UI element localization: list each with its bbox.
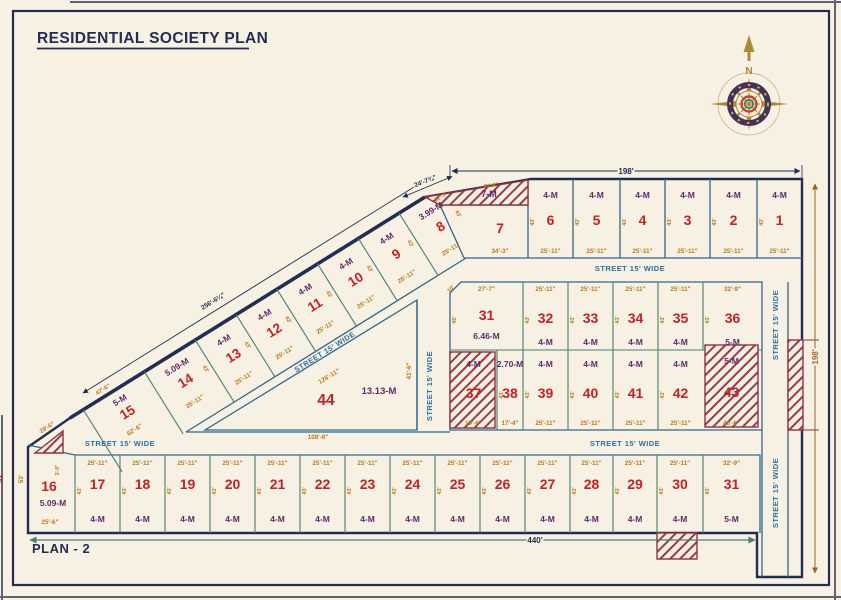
plot-width-dim: 34'-3": [491, 248, 508, 255]
plot-side-dim: 43': [659, 487, 665, 495]
plot-area-label: 4-M: [772, 190, 787, 200]
plot-area-label: 4-M: [583, 359, 598, 369]
plot-side-dim: 53': [18, 474, 25, 483]
plot-number: 41: [628, 385, 644, 401]
plot-area-label: 4-M: [538, 337, 553, 347]
plot-area-label: 4-M: [405, 514, 420, 524]
plot-area-label: 5-M: [725, 337, 740, 347]
plot-number: 29: [627, 476, 643, 492]
plot-width-dim: 40'-6": [723, 420, 740, 427]
plot-side-dim: 43': [437, 487, 443, 495]
plot-number: 34: [628, 310, 644, 326]
plot-width-dim: 25'-11": [625, 460, 645, 467]
plot-number: 25: [450, 476, 466, 492]
plot-width-dim: 25'-11": [670, 420, 690, 427]
plot-area-label: 4-M: [628, 337, 643, 347]
plot-width-dim: 25'-11": [357, 460, 377, 467]
plot-side-dim: 43': [77, 487, 83, 495]
plot-width-dim: 25'-11": [447, 460, 467, 467]
plot-width-dim: 25'-11": [625, 286, 645, 293]
plot-number: 18: [135, 476, 151, 492]
plot-side-dim: 43': [530, 218, 536, 226]
plot-width-dim: 25'-11": [723, 248, 743, 255]
plot-number: 22: [315, 476, 331, 492]
plot-number: 32: [538, 310, 554, 326]
dim-top-width: 198': [618, 167, 633, 176]
plot-width-dim: 25'-11": [535, 286, 555, 293]
reserved-strip-area-label: 7-M: [481, 189, 497, 199]
plot-number: 3: [684, 212, 692, 228]
plot-number: 27: [540, 476, 556, 492]
dim-right-height: 198': [811, 349, 820, 364]
plot-side-dim: 43': [705, 487, 711, 495]
plot-side-dim: 43': [257, 487, 263, 495]
plot-width-dim: 25'-11": [402, 460, 422, 467]
plot-area-label: 4-M: [270, 514, 285, 524]
plot-side-dim: 43': [499, 391, 505, 399]
plan-number-label: PLAN - 2: [32, 541, 90, 556]
plot-side-dim: 43': [615, 487, 621, 495]
plot-side-dim: 43': [167, 487, 173, 495]
plot-side-dim: 43': [392, 487, 398, 495]
plot-side-dim: 43': [705, 316, 711, 324]
plot-area-label: 4-M: [540, 514, 555, 524]
plot-width-dim: 25'-11": [537, 460, 557, 467]
dim-plot16-top: 3'-9": [55, 464, 61, 475]
hatched-below-plot30: [657, 533, 697, 559]
plot-width-dim: 25'-11": [625, 420, 645, 427]
plot-number: 31: [479, 307, 495, 323]
plot-number: 7: [496, 220, 504, 236]
plot-width-dim: 25'-11": [580, 420, 600, 427]
plot-side-dim: 43': [525, 391, 531, 399]
plot-number: 36: [725, 310, 741, 326]
plot-area-label: 4-M: [360, 514, 375, 524]
plot-area-label: 4-M: [673, 514, 688, 524]
plot-number: 4: [639, 212, 647, 228]
plot-area-label: 4-M: [589, 190, 604, 200]
plot-width-dim: 25'-11": [586, 248, 606, 255]
plot-width-dim: 25'-11": [132, 460, 152, 467]
plot-width-dim: 25'-11": [312, 460, 332, 467]
plot-side-dim: 43': [712, 218, 718, 226]
plot-side-dim: 43': [525, 316, 531, 324]
plot-area-label: 4-M: [90, 514, 105, 524]
plot-number: 37: [466, 385, 482, 401]
plot-area-label: 13.13-M: [362, 386, 397, 397]
dim-left-edge-clipped: 53': [0, 473, 5, 483]
plot-number: 23: [360, 476, 376, 492]
plot-width-dim: 25'-11": [677, 248, 697, 255]
plot-area-label: 4-M: [584, 514, 599, 524]
plot-number: 44: [317, 392, 335, 409]
plot-side-dim: 43': [302, 487, 308, 495]
plot-area-label: 4-M: [466, 359, 481, 369]
plot-width-dim: 25'-11": [222, 460, 242, 467]
plot-area-label: 5-M: [724, 356, 739, 366]
street-label-right-upper: STREET 15' WIDE: [771, 290, 780, 360]
residential-society-plan-page: RESIDENTIAL SOCIETY PLAN N: [0, 0, 841, 600]
plot-side-dim: 43': [660, 391, 666, 399]
plot-width-dim: 25'-11": [769, 248, 789, 255]
plot-area-label: 4-M: [543, 190, 558, 200]
plot-side-dim: 43': [347, 487, 353, 495]
street-label-right-lower: STREET 15' WIDE: [771, 458, 780, 528]
society-plan-svg: RESIDENTIAL SOCIETY PLAN N: [0, 0, 841, 600]
plot-side-dim: 43': [660, 316, 666, 324]
plot-area-label: 6.46-M: [473, 331, 499, 341]
plot-number: 26: [495, 476, 511, 492]
plot-number: 31: [724, 476, 740, 492]
plot-number: 1: [776, 212, 784, 228]
paper-background: [0, 0, 841, 600]
plot-width-dim: 25'-11": [492, 460, 512, 467]
plot-width-dim: 25'-11": [540, 248, 560, 255]
plot-side-dim: 43': [615, 316, 621, 324]
plot-area-label: 5.09-M: [40, 498, 66, 508]
plot-area-label: 4-M: [450, 514, 465, 524]
plot-number: 24: [405, 476, 421, 492]
plot-number: 33: [583, 310, 599, 326]
plot-width-dim: 27'-7": [478, 286, 495, 293]
street-label-top: STREET 15' WIDE: [595, 264, 665, 273]
plot-side-dim: 43': [575, 218, 581, 226]
plot-area-label: 5-M: [724, 514, 739, 524]
plot-number: 40: [583, 385, 599, 401]
plot-number: 43: [724, 384, 740, 400]
dim-bottom-width: 440': [527, 536, 542, 545]
plot-side-dim: 43': [622, 218, 628, 226]
plot-width-dim: 25'-11": [670, 460, 690, 467]
plot-side-dim: 43': [527, 487, 533, 495]
plot-area-label: 4-M: [180, 514, 195, 524]
plot-width-dim: 32'-9": [724, 286, 741, 293]
street-label-bottom-right: STREET 15' WIDE: [590, 439, 660, 448]
plot-width-dim: 19'-6": [465, 420, 482, 427]
page-title: RESIDENTIAL SOCIETY PLAN: [37, 30, 268, 47]
plot-side-dim: 43': [667, 218, 673, 226]
plot-number: 20: [225, 476, 241, 492]
plot-width-dim: 25'-11": [535, 420, 555, 427]
plot-number: 19: [180, 476, 196, 492]
plot-width-dim: 25'-6": [41, 519, 58, 526]
plot-number: 28: [584, 476, 600, 492]
plot-area-label: 4-M: [628, 359, 643, 369]
plot-width-dim: 25'-11": [632, 248, 652, 255]
plot-area-label: 4-M: [135, 514, 150, 524]
plot-area-label: 4-M: [673, 359, 688, 369]
plot-area-label: 4-M: [628, 514, 643, 524]
street-label-vertical-mid: STREET 15' WIDE: [425, 351, 434, 421]
plot-side-dim: 41'-6": [406, 362, 413, 379]
plot-number: 5: [593, 212, 601, 228]
plot-width-dim: 108'-8": [308, 434, 329, 441]
plot-number: 30: [672, 476, 688, 492]
plot-area-label: 4-M: [583, 337, 598, 347]
plot-area-label: 4-M: [680, 190, 695, 200]
plot-area-label: 4-M: [538, 359, 553, 369]
plot-side-dim: 45': [452, 316, 458, 324]
plot-number: 42: [673, 385, 689, 401]
plot-area-label: 4-M: [635, 190, 650, 200]
plot-area-label: 4-M: [495, 514, 510, 524]
plot-width-dim: 17'-4": [501, 420, 518, 427]
plot-number: 16: [41, 478, 57, 494]
plot-side-dim: 43': [615, 391, 621, 399]
plot-area-label: 4-M: [225, 514, 240, 524]
plot-area-label: 4-M: [673, 337, 688, 347]
plot-side-dim: 43': [122, 487, 128, 495]
plot-width-dim: 25'-11": [177, 460, 197, 467]
plot-number: 21: [270, 476, 286, 492]
plot-side-dim: 43': [759, 218, 765, 226]
compass-north-label: N: [745, 66, 752, 77]
plot-width-dim: 25'-11": [581, 460, 601, 467]
plot-area-label: 4-M: [315, 514, 330, 524]
plot-width-dim: 25'-11": [670, 286, 690, 293]
plot-width-dim: 25'-11": [267, 460, 287, 467]
plot-side-dim: 43': [212, 487, 218, 495]
plot-side-dim: 43': [570, 391, 576, 399]
plot-number: 6: [547, 212, 555, 228]
street-label-bottom-left: STREET 15' WIDE: [85, 439, 155, 448]
hatched-right-edge: [788, 340, 803, 430]
plot-area-label: 4-M: [726, 190, 741, 200]
plot-side-dim: 43': [570, 316, 576, 324]
plot-area-label: 2.70-M: [497, 359, 523, 369]
plot-number: 17: [90, 476, 106, 492]
plot-width-dim: 32'-9": [723, 460, 740, 467]
plot-number: 35: [673, 310, 689, 326]
plot-width-dim: 25'-11": [580, 286, 600, 293]
plot-side-dim: 43': [572, 487, 578, 495]
plot-number: 39: [538, 385, 554, 401]
plot-width-dim: 25'-11": [87, 460, 107, 467]
plot-side-dim: 43': [482, 487, 488, 495]
plot-number: 2: [730, 212, 738, 228]
